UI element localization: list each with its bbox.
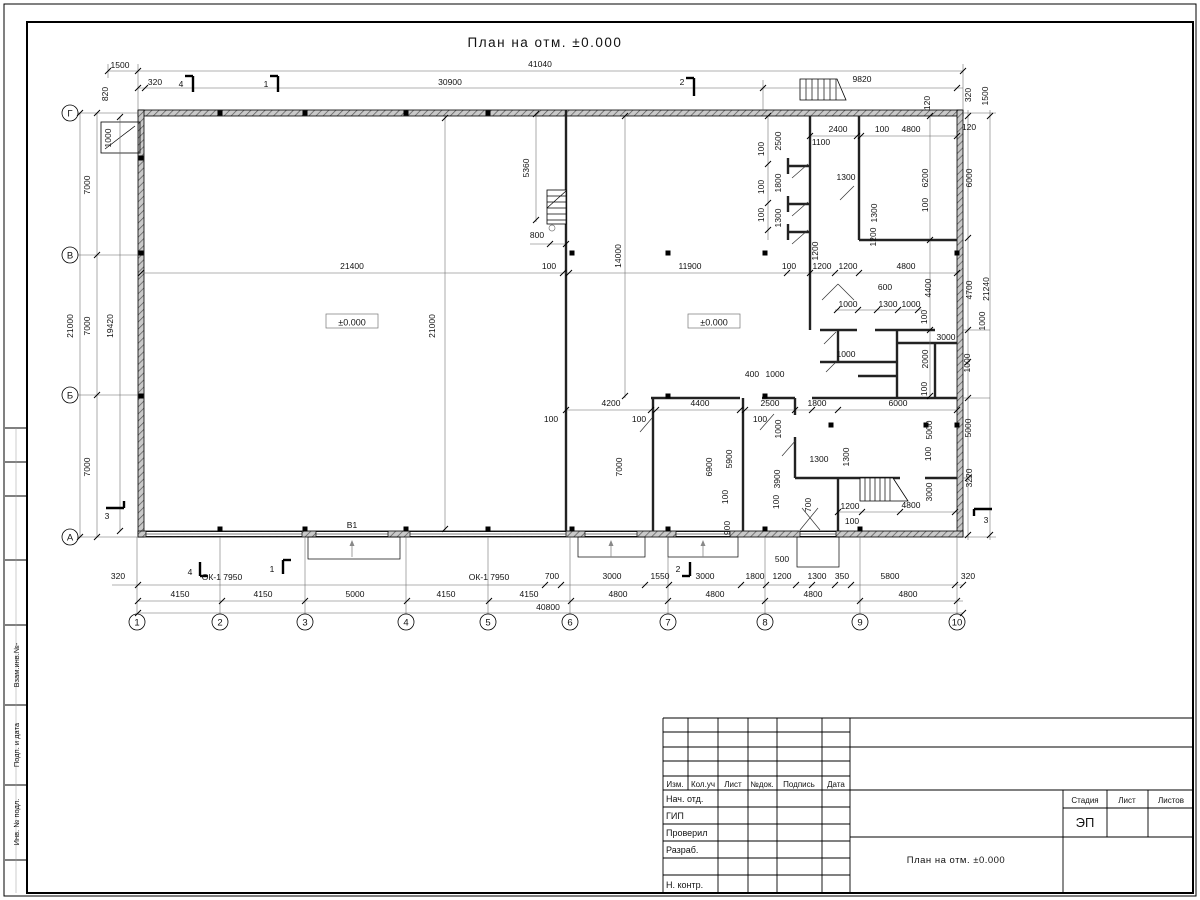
dimension-label: 100 [875, 124, 889, 134]
dimension-label: 100 [720, 490, 730, 504]
door-swing [822, 284, 838, 300]
dimension-label: 1 [264, 79, 269, 89]
column-marker [763, 527, 768, 532]
door-swing [838, 284, 854, 300]
stamp-sheets-label: Листов [1158, 796, 1184, 805]
dimension-label: 1300 [879, 299, 898, 309]
dimension-label: 1550 [651, 571, 670, 581]
axis-label: 7 [665, 618, 670, 629]
dimension-label: 1200 [839, 261, 858, 271]
dimension-label: 100 [919, 310, 929, 324]
dimension-label: 3220 [964, 468, 974, 487]
column-marker [303, 527, 308, 532]
dimension-label: 14000 [613, 244, 623, 268]
floor-plan-drawing: 1500410403203090098204128201000240010048… [0, 0, 1200, 900]
dimension-label: 100 [919, 382, 929, 396]
dimension-label: 320 [111, 571, 125, 581]
dimension-label: 100 [756, 180, 766, 194]
dimension-label: В1 [347, 520, 358, 530]
dimension-label: 4150 [171, 589, 190, 599]
dimension-label: 40800 [536, 602, 560, 612]
dimension-label: 900 [722, 521, 732, 535]
dimension-label: 41040 [528, 59, 552, 69]
stamp-doc-title: План на отм. ±0.000 [907, 855, 1005, 866]
dimension-label: 6000 [964, 168, 974, 187]
dimension-label: 1200 [841, 501, 860, 511]
dimension-label: 1800 [773, 173, 783, 192]
dimension-label: 9820 [853, 74, 872, 84]
wall [138, 110, 144, 537]
dimension-label: 2 [676, 564, 681, 574]
column-marker [666, 527, 671, 532]
axis-label: А [67, 533, 74, 544]
dimension-label: 2500 [761, 398, 780, 408]
dimension-label: 1300 [808, 571, 827, 581]
dimension-label: 21000 [427, 314, 437, 338]
entrance-arrowhead [350, 540, 355, 546]
dimension-label: 21400 [340, 261, 364, 271]
level-mark: ±0.000 [700, 318, 727, 328]
dimension-label: 1800 [746, 571, 765, 581]
title-block: Изм. Кол.уч Лист №док. Подпись Дата Нач.… [666, 780, 1184, 890]
stamp-sheet-label: Лист [1118, 796, 1136, 805]
dimension-label: 1500 [980, 86, 990, 105]
dimension-label: 7000 [82, 457, 92, 476]
porch [578, 537, 645, 557]
dimension-label: 400 [745, 369, 759, 379]
dimension-label: 100 [756, 142, 766, 156]
dimension-label: 100 [845, 516, 859, 526]
axis-label: 8 [762, 618, 767, 629]
dimension-label: 6000 [889, 398, 908, 408]
dimension-label: 800 [530, 230, 544, 240]
dimension-label: 1300 [841, 447, 851, 466]
dimension-label: 1300 [773, 208, 783, 227]
stamp-row-gip: ГИП [666, 811, 684, 821]
dimension-label: 2400 [829, 124, 848, 134]
axis-label: 4 [403, 618, 408, 629]
column-marker [763, 251, 768, 256]
sheet-frame [4, 4, 1196, 896]
stair-mid [547, 190, 566, 224]
frame-label-inv: Инв. № подл. [12, 799, 21, 846]
dimension-label: 7000 [82, 175, 92, 194]
dimension-label: 100 [753, 414, 767, 424]
dimension-label: 4800 [897, 261, 916, 271]
dimension-label: 600 [878, 282, 892, 292]
axis-label: 6 [567, 618, 572, 629]
dimension-label: 1000 [839, 299, 858, 309]
dimension-label: 4800 [902, 124, 921, 134]
porch [797, 537, 839, 567]
dimension-label: 100 [771, 495, 781, 509]
dimension-label: 1100 [812, 137, 831, 147]
axis-label: В [67, 251, 73, 262]
axis-label: Г [67, 109, 72, 120]
column-marker [486, 111, 491, 116]
frame-labels: Взам.инв.№- Подп. и дата Инв. № подл. [12, 642, 21, 845]
dimension-label: 3000 [696, 571, 715, 581]
dimension-label: 2000 [920, 349, 930, 368]
dimension-label: 7000 [82, 316, 92, 335]
dimension-label: 4800 [902, 500, 921, 510]
dimension-label: 6900 [704, 457, 714, 476]
axis-bubbles: 12345678910ГВБА [62, 105, 965, 630]
dimension-label: 1 [270, 564, 275, 574]
stair-pole [549, 225, 555, 231]
dimension-label: 4800 [804, 589, 823, 599]
axis-label: 1 [134, 618, 139, 629]
stair-symbols [101, 79, 908, 501]
stamp-col-list: Лист [724, 780, 742, 789]
dimension-label: 1800 [808, 398, 827, 408]
dimension-label: 350 [835, 571, 849, 581]
dimension-label: 120 [922, 96, 932, 110]
stamp-col-ndok: №док. [750, 780, 773, 789]
stamp-row-nachotd: Нач. отд. [666, 794, 703, 804]
column-marker [218, 111, 223, 116]
entrance-arrowhead [701, 540, 706, 546]
dimension-label: 1000 [773, 419, 783, 438]
stamp-col-podpis: Подпись [783, 780, 815, 789]
dimension-label: 5000 [924, 420, 934, 439]
dimension-label: 1300 [869, 203, 879, 222]
level-marks: ±0.000±0.000 [326, 314, 740, 328]
dimension-label: 30900 [438, 77, 462, 87]
dimension-label: 320 [148, 77, 162, 87]
dimension-label: 2500 [773, 131, 783, 150]
dimension-label: 2 [680, 77, 685, 87]
dimension-label: 4700 [964, 280, 974, 299]
dimension-label: 5360 [521, 158, 531, 177]
stamp-col-koluch: Кол.уч [691, 780, 715, 789]
dimension-label: 1000 [977, 311, 987, 330]
column-marker [858, 527, 863, 532]
dimension-label: 3000 [937, 332, 956, 342]
dimension-label: 1000 [837, 349, 856, 359]
page-title: План на отм. ±0.000 [468, 35, 623, 50]
frame-label-podp: Подп. и дата [12, 722, 21, 767]
frame-label-vzam: Взам.инв.№- [12, 642, 21, 687]
dimension-label: 1000 [766, 369, 785, 379]
column-marker [486, 527, 491, 532]
column-marker [955, 251, 960, 256]
entrance-arrowhead [609, 540, 614, 546]
wall [957, 110, 963, 537]
dimension-label: 3000 [603, 571, 622, 581]
dimension-label: 5800 [881, 571, 900, 581]
column-marker [666, 251, 671, 256]
wall [138, 110, 963, 116]
dimension-label: 21240 [981, 277, 991, 301]
dimension-label: 3 [984, 515, 989, 525]
column-marker [218, 527, 223, 532]
column-marker [404, 527, 409, 532]
dimension-labels: 1500410403203090098204128201000240010048… [65, 59, 991, 612]
axis-label: 9 [857, 618, 862, 629]
dimension-label: 4800 [899, 589, 918, 599]
dimension-label: ОК-1 7950 [202, 572, 243, 582]
dimension-label: 3900 [772, 469, 782, 488]
stamp-row-razrab: Разраб. [666, 845, 698, 855]
dimension-label: 1000 [962, 353, 972, 372]
dimension-label: 500 [775, 554, 789, 564]
dimension-label: 320 [963, 88, 973, 102]
dimension-label: 21000 [65, 314, 75, 338]
dimension-label: 11900 [678, 261, 701, 271]
dimension-label: 4150 [254, 589, 273, 599]
dimension-label: 4800 [706, 589, 725, 599]
level-mark: ±0.000 [338, 318, 365, 328]
dimension-label: 1000 [902, 299, 921, 309]
stamp-col-izm: Изм. [666, 780, 683, 789]
axis-label: Б [67, 391, 73, 402]
dimension-label: 4800 [609, 589, 628, 599]
dimension-label: 1300 [837, 172, 856, 182]
dimension-label: 1200 [810, 241, 820, 260]
dimension-label: 4 [179, 79, 184, 89]
dimension-label: 5900 [724, 449, 734, 468]
stamp-stage-label: Стадия [1071, 796, 1098, 805]
dimension-label: 100 [782, 261, 796, 271]
column-marker [139, 251, 144, 256]
dimension-label: 100 [756, 208, 766, 222]
door-swings [640, 164, 854, 530]
porch [308, 537, 400, 559]
stamp-stage-value: ЭП [1076, 815, 1095, 830]
dimension-label: 3 [105, 511, 110, 521]
dimension-label: 120 [962, 122, 976, 132]
dimension-label: 1200 [868, 227, 878, 246]
dimension-label: 4400 [923, 278, 933, 297]
stamp-row-proveril: Проверил [666, 828, 707, 838]
dimension-label: 4400 [691, 398, 710, 408]
column-marker [139, 394, 144, 399]
entrance-porches [308, 537, 839, 567]
column-marker [139, 156, 144, 161]
interior-walls [566, 110, 957, 531]
title-block-grid [663, 718, 1193, 893]
dimension-label: 1000 [103, 128, 113, 147]
dimension-label: 100 [542, 261, 556, 271]
dimension-label: ОК-1 7950 [469, 572, 510, 582]
door-swing [824, 332, 836, 344]
dimension-label: 700 [803, 498, 813, 512]
door-swing [840, 186, 854, 200]
dimension-label: 100 [920, 198, 930, 212]
stair-bottom [860, 478, 908, 501]
dimension-label: 320 [961, 571, 975, 581]
dimension-label: 700 [545, 571, 559, 581]
dimension-label: 100 [923, 447, 933, 461]
stamp-row-nkontr: Н. контр. [666, 880, 703, 890]
stair-top [800, 79, 846, 100]
column-marker [303, 111, 308, 116]
dimension-label: 4150 [437, 589, 456, 599]
axis-label: 5 [485, 618, 490, 629]
dimension-label: 5000 [963, 418, 973, 437]
axis-label: 10 [952, 618, 963, 629]
dimension-label: 7000 [614, 457, 624, 476]
column-marker [955, 423, 960, 428]
dimension-label: 5000 [346, 589, 365, 599]
dimension-label: 1500 [111, 60, 130, 70]
column-marker [666, 394, 671, 399]
dimension-label: 4150 [520, 589, 539, 599]
column-marker [570, 251, 575, 256]
dimension-label: 100 [544, 414, 558, 424]
dimension-label: 3000 [924, 482, 934, 501]
stamp-col-data: Дата [827, 780, 845, 789]
dimension-label: 1300 [810, 454, 829, 464]
axis-label: 3 [302, 618, 307, 629]
dimension-label: 4 [188, 567, 193, 577]
dimension-label: 1200 [773, 571, 792, 581]
axis-label: 2 [217, 618, 222, 629]
dimension-label: 19420 [105, 314, 115, 338]
dimension-label: 6200 [920, 168, 930, 187]
column-marker [829, 423, 834, 428]
dimension-label: 820 [100, 87, 110, 101]
dimension-label: 1200 [813, 261, 832, 271]
column-marker [570, 527, 575, 532]
column-marker [404, 111, 409, 116]
dimension-label: 4200 [602, 398, 621, 408]
drawing-sheet: 1500410403203090098204128201000240010048… [0, 0, 1200, 900]
dimension-label: 100 [632, 414, 646, 424]
